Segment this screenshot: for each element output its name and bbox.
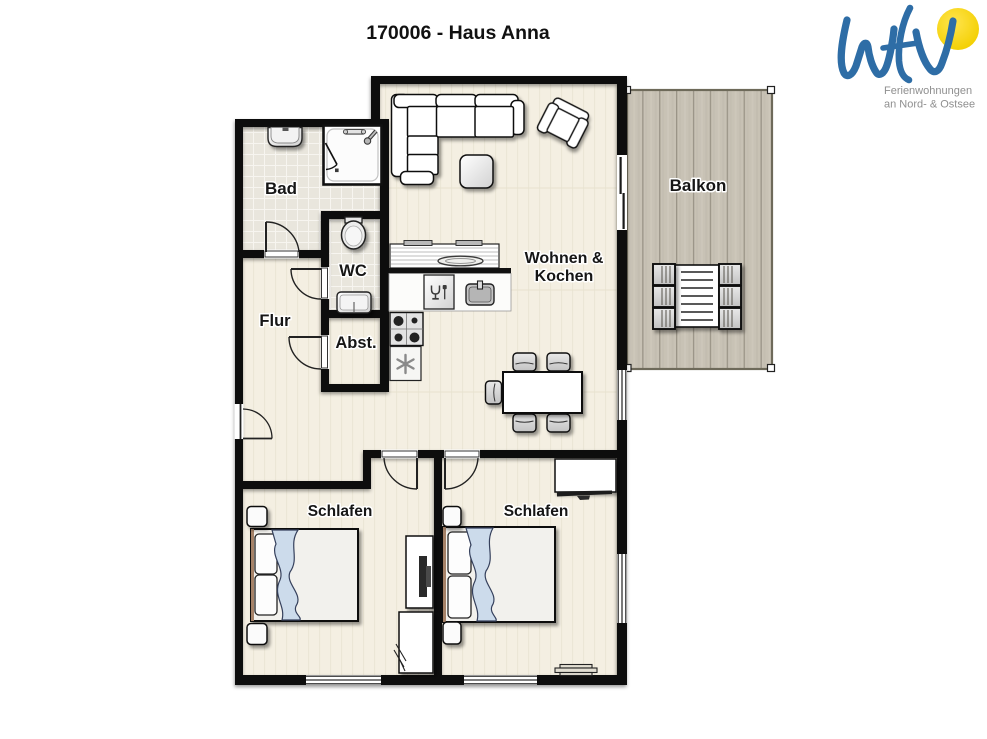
svg-text:Ferienwohnungen: Ferienwohnungen xyxy=(884,85,972,97)
svg-text:Schlafen: Schlafen xyxy=(308,503,373,520)
svg-text:Schlafen: Schlafen xyxy=(504,503,569,520)
svg-text:Wohnen &: Wohnen & xyxy=(525,250,604,267)
svg-text:Kochen: Kochen xyxy=(535,268,594,285)
svg-text:170006 - Haus Anna: 170006 - Haus Anna xyxy=(366,22,550,44)
svg-text:Bad: Bad xyxy=(265,179,297,198)
svg-text:Flur: Flur xyxy=(259,312,291,330)
svg-text:WC: WC xyxy=(339,262,367,280)
svg-text:Balkon: Balkon xyxy=(670,176,727,195)
svg-text:Abst.: Abst. xyxy=(335,334,376,352)
svg-text:an Nord- & Ostsee: an Nord- & Ostsee xyxy=(884,99,975,111)
